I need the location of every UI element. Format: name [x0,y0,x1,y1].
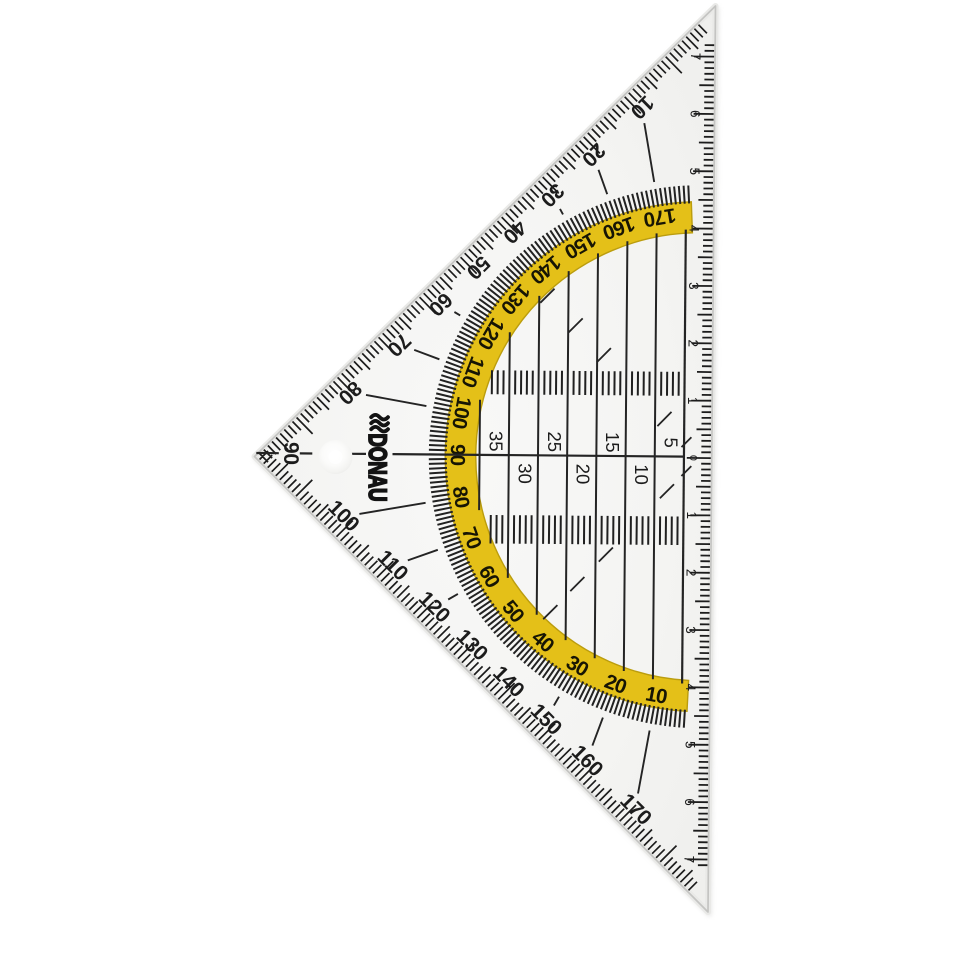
svg-text:80: 80 [448,485,474,510]
svg-text:3: 3 [683,626,698,634]
svg-text:5: 5 [661,438,682,448]
svg-text:6: 6 [682,798,697,806]
svg-text:0: 0 [687,455,699,461]
svg-text:2: 2 [686,339,701,347]
svg-text:20: 20 [573,464,594,485]
svg-text:5: 5 [682,741,697,749]
svg-text:1: 1 [684,512,699,520]
svg-text:25: 25 [544,432,565,453]
svg-text:4: 4 [687,225,702,233]
svg-text:4: 4 [683,684,698,692]
svg-text:7: 7 [681,856,696,864]
svg-text:3: 3 [686,282,701,290]
svg-text:6: 6 [688,110,703,118]
svg-text:7: 7 [688,53,703,61]
svg-text:1: 1 [685,397,700,405]
svg-text:15: 15 [602,432,623,453]
svg-text:90: 90 [279,442,302,465]
svg-text:35: 35 [485,431,506,452]
svg-text:30: 30 [514,463,535,484]
svg-text:DONAU: DONAU [363,434,391,502]
svg-text:2: 2 [684,569,699,577]
svg-text:5: 5 [687,167,702,175]
svg-text:10: 10 [631,464,652,485]
